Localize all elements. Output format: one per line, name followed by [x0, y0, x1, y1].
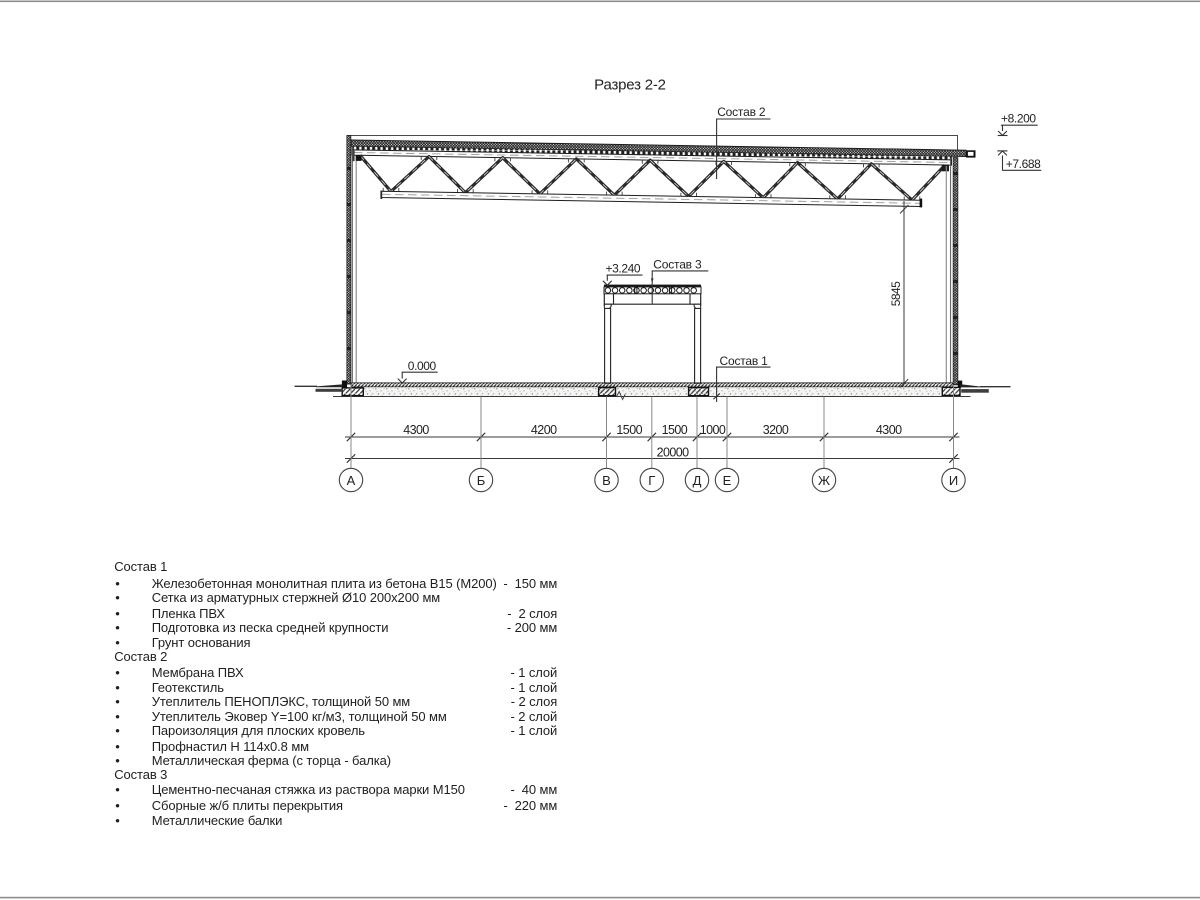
svg-text:Д: Д	[693, 473, 702, 488]
svg-text:20000: 20000	[657, 445, 690, 459]
svg-text:+8.200: +8.200	[1001, 111, 1036, 125]
svg-text:1000: 1000	[700, 423, 726, 437]
svg-text:+7.688: +7.688	[1006, 157, 1041, 171]
svg-text:В: В	[602, 473, 611, 488]
svg-text:Состав 2: Состав 2	[717, 105, 766, 119]
svg-text:4300: 4300	[876, 423, 902, 437]
svg-text:3200: 3200	[763, 423, 789, 437]
svg-text:Б: Б	[477, 473, 486, 488]
svg-text:Разрез 2-2: Разрез 2-2	[594, 77, 666, 94]
svg-text:4300: 4300	[403, 423, 429, 437]
svg-text:5845: 5845	[889, 281, 903, 306]
svg-text:И: И	[949, 473, 958, 488]
svg-text:Состав 3: Состав 3	[653, 257, 702, 271]
svg-text:1500: 1500	[662, 423, 688, 437]
svg-text:А: А	[347, 473, 356, 488]
svg-text:Состав 1: Состав 1	[720, 354, 769, 368]
svg-text:0.000: 0.000	[408, 359, 437, 373]
svg-text:4200: 4200	[531, 423, 557, 437]
svg-text:1500: 1500	[616, 423, 642, 437]
svg-text:Г: Г	[648, 473, 655, 488]
svg-text:Е: Е	[723, 473, 732, 488]
svg-text:+3.240: +3.240	[606, 262, 641, 276]
svg-text:Ж: Ж	[818, 473, 830, 488]
